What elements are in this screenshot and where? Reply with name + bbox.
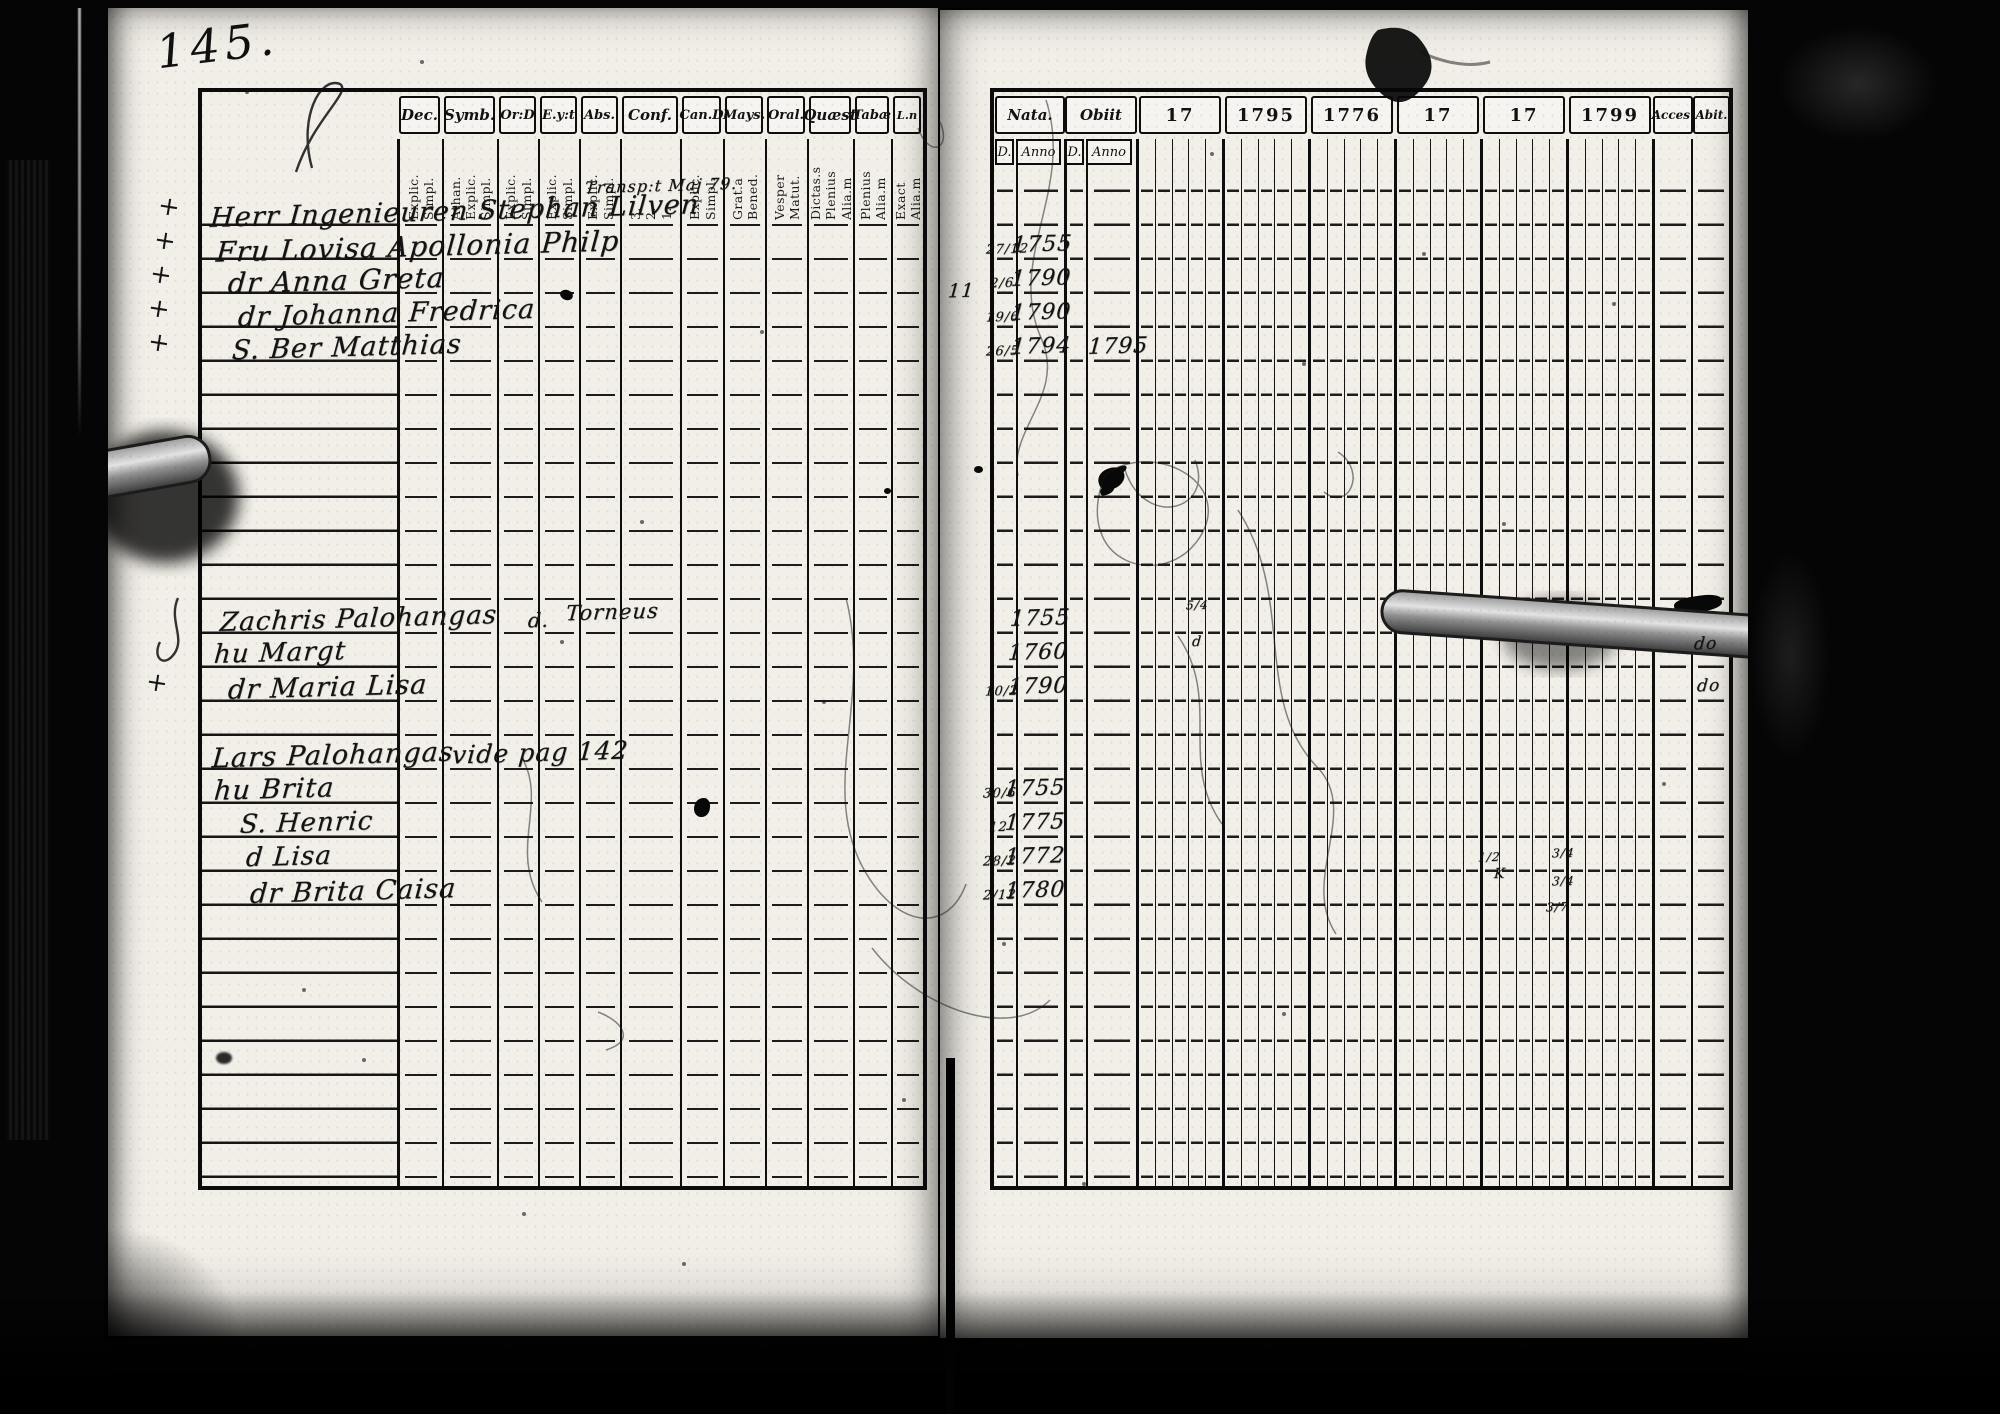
year-column-block (1222, 139, 1308, 1186)
sub-header-text: Matut. (788, 142, 801, 220)
row-dashes (1519, 176, 1531, 1186)
year-column-block (1480, 139, 1566, 1186)
film-texture (1778, 26, 1938, 142)
handwritten-entry: K (1493, 866, 1506, 882)
year-column-block (1308, 139, 1394, 1186)
handwritten-entry: 11 (947, 280, 975, 303)
handwritten-entry: S. Henric (239, 806, 375, 840)
table-column: Explic.Simpl. (579, 139, 620, 1186)
margin-cross-mark: + (152, 224, 178, 257)
row-dashes (1416, 176, 1428, 1186)
sub-header-text: Alia.m (874, 142, 887, 220)
table-column: VesperMatut. (765, 139, 807, 1186)
year-sub-column (1430, 139, 1447, 1186)
handwritten-entry: 1790 (1010, 265, 1072, 292)
row-dashes (1485, 176, 1497, 1186)
column-header: Abit. (1693, 96, 1730, 134)
handwritten-entry: 1780 (1004, 877, 1066, 904)
row-dashes (1094, 176, 1130, 1186)
year-sub-column (1549, 139, 1566, 1186)
handwritten-entry: Torneus (565, 599, 660, 626)
row-dashes (859, 217, 886, 1186)
year-sub-column (1225, 139, 1241, 1186)
margin-cross-mark: + (148, 258, 174, 291)
margin-cross-mark: + (156, 190, 182, 223)
handwritten-entry: 1775 (1004, 809, 1066, 836)
year-column-block (1394, 139, 1480, 1186)
year-sub-column (1499, 139, 1516, 1186)
margin-cross-mark: + (146, 326, 172, 359)
film-edge-top (0, 0, 2000, 8)
year-sub-column (1205, 139, 1222, 1186)
sub-header: PleniusAlia.m (855, 139, 891, 220)
row-dashes (1605, 176, 1617, 1186)
row-dashes (1660, 176, 1686, 1186)
table-column: Dictas.sPleniusAlia.m (807, 139, 853, 1186)
sub-header-text: Alia.m (840, 142, 853, 220)
table-column (1652, 139, 1691, 1186)
year-column-block (1136, 139, 1222, 1186)
handwritten-entry: 5/4 (1185, 598, 1209, 613)
column-header: 17 (1397, 96, 1479, 134)
sub-header-text: Vesper (773, 142, 786, 220)
year-sub-column (1446, 139, 1463, 1186)
row-dashes (897, 217, 920, 1186)
sub-header-text: Exact (894, 142, 907, 220)
row-dashes (1588, 176, 1600, 1186)
column-header: Quæst (809, 96, 851, 134)
year-sub-column (1397, 139, 1413, 1186)
handwritten-entry: 1755 (1011, 231, 1073, 258)
row-dashes (1141, 176, 1153, 1186)
column-header: 17 (1139, 96, 1221, 134)
year-sub-column (1516, 139, 1533, 1186)
year-sub-column (1377, 139, 1394, 1186)
ink-blot (884, 488, 891, 494)
column-header: Mays. (725, 96, 763, 134)
row-dashes (1261, 176, 1273, 1186)
column-header: 1795 (1225, 96, 1307, 134)
right-table: Nata.Obiit171795177617171799Acces.Abit.D… (990, 88, 1733, 1190)
sub-header-text: Dictas.s (809, 142, 822, 220)
row-dashes (1363, 176, 1375, 1186)
row-dashes (1638, 176, 1650, 1186)
column-header: Conf. (622, 96, 678, 134)
handwritten-entry: 1795 (1087, 333, 1149, 360)
handwritten-entry: vide pag 142 (451, 735, 630, 769)
row-dashes (1294, 176, 1306, 1186)
row-dashes (1244, 176, 1256, 1186)
sub-header-text: Bened. (746, 142, 759, 220)
ink-blot (974, 466, 983, 473)
table-column: 3.2.1. (620, 139, 680, 1186)
handwritten-entry: do (1696, 676, 1721, 697)
film-texture (6, 160, 50, 1140)
ink-blot (216, 1052, 232, 1064)
year-sub-column (1635, 139, 1652, 1186)
row-dashes (1552, 176, 1564, 1186)
row-dashes (1347, 176, 1359, 1186)
year-sub-column (1360, 139, 1377, 1186)
row-dashes (504, 217, 534, 1186)
handwritten-entry: hu Margt (213, 636, 347, 670)
handwritten-entry: d (1191, 634, 1202, 650)
film-scratch-line (78, 0, 81, 438)
year-sub-column (1413, 139, 1430, 1186)
column-header: Tabæ (855, 96, 889, 134)
sub-header: ExactAlia.m (893, 139, 923, 220)
microfilm-frame: 145. Dec.Explic.Simpl.Symb.Athan.Explic.… (0, 0, 2000, 1414)
handwritten-entry: 1755 (1009, 605, 1071, 632)
table-column (1691, 139, 1729, 1186)
year-sub-column (1139, 139, 1155, 1186)
row-dashes (1158, 176, 1170, 1186)
year-column-block (1566, 139, 1652, 1186)
year-sub-column (1569, 139, 1585, 1186)
row-dashes (1277, 176, 1289, 1186)
year-sub-column (1532, 139, 1549, 1186)
row-dashes (1330, 176, 1342, 1186)
row-dashes (1208, 176, 1220, 1186)
handwritten-entry: dr Maria Lisa (227, 669, 429, 706)
row-dashes (1227, 176, 1239, 1186)
year-sub-column (1311, 139, 1327, 1186)
year-sub-column (1327, 139, 1344, 1186)
year-sub-column (1188, 139, 1205, 1186)
row-dashes (1466, 176, 1478, 1186)
row-dashes (814, 217, 847, 1186)
handwritten-entry: dr Anna Greta (227, 261, 446, 300)
year-sub-column (1155, 139, 1172, 1186)
column-header: Can.D (682, 96, 721, 134)
film-edge-bottom (0, 1292, 2000, 1414)
year-sub-column (1258, 139, 1275, 1186)
sub-header-text: Plenius (859, 142, 872, 220)
film-texture (1750, 550, 1830, 760)
row-dashes (1433, 176, 1445, 1186)
year-sub-column (1344, 139, 1361, 1186)
year-sub-column (1241, 139, 1258, 1186)
film-edge-left (0, 0, 108, 1414)
year-sub-column (1172, 139, 1189, 1186)
handwritten-entry: d. (527, 608, 550, 633)
row-dashes (1621, 176, 1633, 1186)
column-header: Dec. (399, 96, 440, 134)
year-sub-column (1274, 139, 1291, 1186)
margin-cross-mark: + (144, 666, 170, 699)
column-header: Symb. (444, 96, 495, 134)
row-dashes (772, 217, 802, 1186)
row-dashes (1070, 176, 1083, 1186)
margin-cross-mark: + (146, 292, 172, 325)
column-header: 1776 (1311, 96, 1393, 134)
row-dashes (450, 217, 490, 1186)
table-column (1086, 139, 1136, 1186)
handwritten-entry: 1/2 (1477, 850, 1501, 865)
table-column: Grat.aBened. (723, 139, 765, 1186)
handwritten-entry: 3/7 (1545, 900, 1569, 915)
year-sub-column (1483, 139, 1499, 1186)
year-sub-column (1618, 139, 1635, 1186)
table-column: Explic.Simpl. (680, 139, 723, 1186)
handwritten-entry: 3/4 (1551, 846, 1575, 861)
handwritten-entry: dr Brita Caisa (249, 873, 458, 910)
gutter-fold-line (946, 1058, 955, 1414)
column-header: Acces. (1653, 96, 1693, 134)
sub-header: VesperMatut. (767, 139, 807, 220)
column-header: Nata. (995, 96, 1065, 134)
handwritten-entry: do (1693, 634, 1718, 655)
row-dashes (405, 217, 437, 1186)
handwritten-entry: 1790 (1010, 299, 1072, 326)
handwritten-entry: 1790 (1007, 673, 1069, 700)
row-dashes (730, 217, 760, 1186)
year-sub-column (1291, 139, 1308, 1186)
row-dashes (1535, 176, 1547, 1186)
column-header: E.y:t (540, 96, 577, 134)
row-dashes (586, 217, 616, 1186)
table-column: PleniusAlia.m (853, 139, 891, 1186)
column-header: Abs. (581, 96, 618, 134)
handwritten-entry: 1794 (1010, 333, 1072, 360)
column-header: L.n (893, 96, 921, 134)
row-dashes (1191, 176, 1203, 1186)
handwritten-entry: S. Ber Matthias (231, 329, 463, 366)
handwritten-entry: d Lisa (245, 841, 333, 873)
handwritten-entry: 3/4 (1551, 874, 1575, 889)
sub-header-text: Alia.m (909, 142, 922, 220)
row-dashes (687, 217, 718, 1186)
column-header: 1799 (1569, 96, 1651, 134)
row-dashes (545, 217, 575, 1186)
row-dashes (1313, 176, 1325, 1186)
sub-header: Dictas.sPleniusAlia.m (809, 139, 853, 220)
row-dashes (1502, 176, 1514, 1186)
row-dashes (1571, 176, 1583, 1186)
row-dashes (1449, 176, 1461, 1186)
handwritten-entry: hu Brita (213, 772, 336, 806)
row-dashes (1399, 176, 1411, 1186)
year-sub-column (1602, 139, 1619, 1186)
column-header: Oral. (767, 96, 805, 134)
sub-header-text: Plenius (824, 142, 837, 220)
column-header: Obiit (1065, 96, 1137, 134)
table-column: ExactAlia.m (891, 139, 923, 1186)
column-header: 17 (1483, 96, 1565, 134)
column-header: Or:D (499, 96, 536, 134)
year-sub-column (1585, 139, 1602, 1186)
handwritten-entry: 1755 (1004, 775, 1066, 802)
row-dashes (1380, 176, 1392, 1186)
row-dashes (629, 217, 673, 1186)
handwritten-entry: 1760 (1007, 639, 1069, 666)
year-sub-column (1463, 139, 1480, 1186)
handwritten-entry: 1772 (1004, 843, 1066, 870)
row-dashes (1175, 176, 1187, 1186)
